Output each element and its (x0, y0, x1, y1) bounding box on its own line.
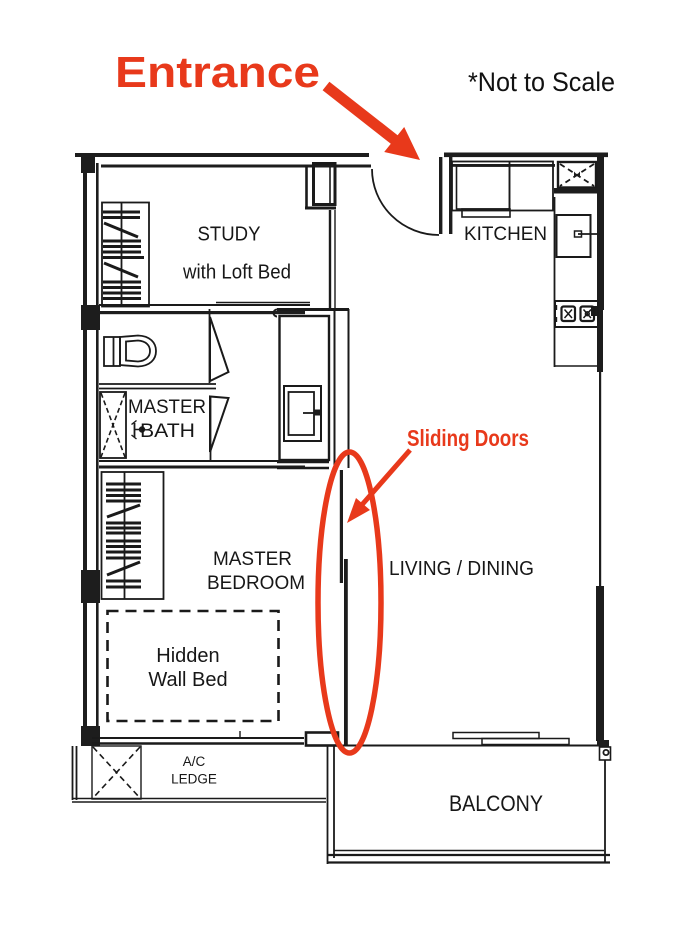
svg-text:with Loft Bed: with Loft Bed (182, 262, 291, 284)
svg-text:Entrance: Entrance (115, 48, 320, 97)
svg-text:Hidden: Hidden (156, 645, 219, 667)
svg-text:BEDROOM: BEDROOM (207, 573, 305, 594)
svg-text:MASTER: MASTER (128, 397, 206, 418)
svg-text:LIVING / DINING: LIVING / DINING (389, 557, 534, 580)
svg-text:Wall Bed: Wall Bed (148, 669, 227, 691)
svg-text:MASTER: MASTER (213, 549, 292, 570)
svg-text:*Not to Scale: *Not to Scale (468, 67, 615, 97)
svg-text:LEDGE: LEDGE (171, 772, 217, 787)
svg-text:Sliding Doors: Sliding Doors (407, 425, 529, 451)
svg-text:A/C: A/C (183, 754, 206, 769)
svg-text:STUDY: STUDY (198, 224, 261, 246)
svg-text:BALCONY: BALCONY (449, 791, 543, 816)
svg-text:BATH: BATH (140, 421, 195, 442)
svg-text:KITCHEN: KITCHEN (464, 223, 547, 245)
